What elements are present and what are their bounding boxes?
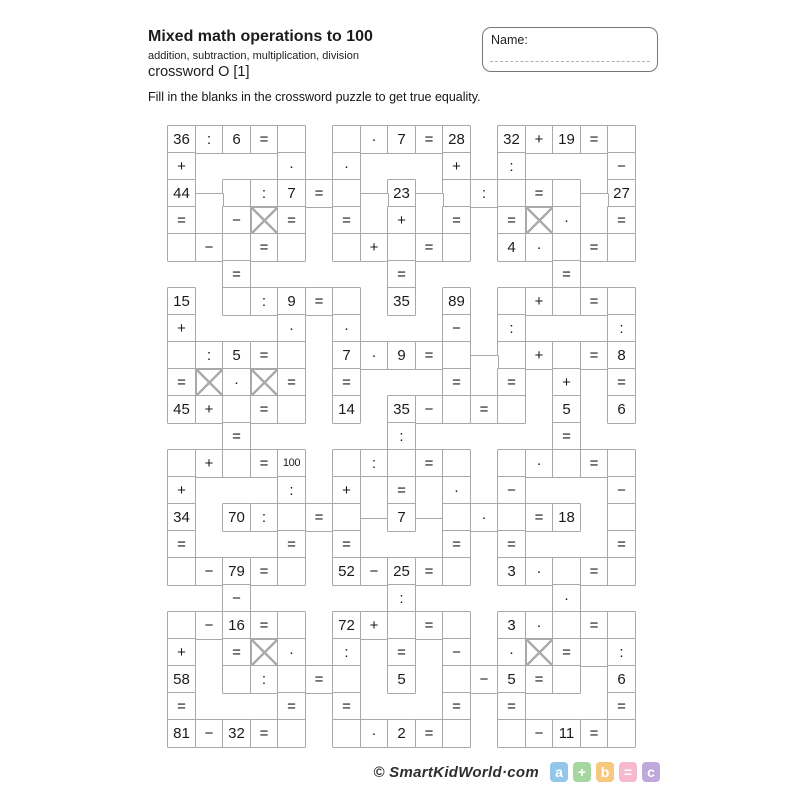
answer-cell[interactable] (552, 179, 581, 208)
operator-cell: = (250, 449, 279, 478)
answer-cell[interactable] (332, 665, 361, 694)
operator-cell: = (222, 422, 251, 451)
answer-cell[interactable] (442, 719, 471, 748)
operator-cell: · (360, 125, 389, 154)
given-number-cell: 28 (442, 125, 471, 154)
given-number-cell: 100 (277, 449, 306, 478)
footer-badges: a+b=c (550, 762, 660, 782)
answer-cell[interactable] (332, 719, 361, 748)
given-number-cell: 14 (332, 395, 361, 424)
answer-cell[interactable] (222, 233, 251, 262)
answer-cell[interactable] (167, 233, 196, 262)
operator-cell: = (222, 260, 251, 289)
operator-cell: = (580, 557, 609, 586)
operator-cell: = (552, 422, 581, 451)
operator-cell: = (277, 692, 306, 721)
answer-cell[interactable] (607, 719, 636, 748)
answer-cell[interactable] (442, 611, 471, 640)
answer-cell[interactable] (552, 665, 581, 694)
answer-cell[interactable] (552, 341, 581, 370)
operator-cell: + (442, 152, 471, 181)
operator-cell: = (167, 692, 196, 721)
answer-cell[interactable] (607, 557, 636, 586)
given-number-cell: 81 (167, 719, 196, 748)
operator-cell: = (250, 395, 279, 424)
instruction-text: Fill in the blanks in the crossword puzz… (148, 90, 481, 104)
given-number-cell: 32 (222, 719, 251, 748)
answer-cell[interactable] (552, 557, 581, 586)
answer-cell[interactable] (387, 611, 416, 640)
given-number-cell: 5 (552, 395, 581, 424)
operator-cell: + (195, 395, 224, 424)
answer-cell[interactable] (222, 395, 251, 424)
operator-cell: = (415, 719, 444, 748)
answer-cell[interactable] (167, 449, 196, 478)
answer-cell[interactable] (277, 719, 306, 748)
given-number-cell: 9 (387, 341, 416, 370)
operator-cell: = (442, 206, 471, 235)
name-label: Name: (491, 33, 528, 47)
operator-cell: = (167, 368, 196, 397)
operator-cell: = (497, 368, 526, 397)
operator-cell: : (470, 179, 499, 208)
operator-cell: = (387, 476, 416, 505)
operator-cell: = (332, 368, 361, 397)
answer-cell[interactable] (222, 665, 251, 694)
operator-cell: + (360, 611, 389, 640)
operator-cell: · (497, 638, 526, 667)
footer-badge: = (619, 762, 637, 782)
operator-cell: − (470, 665, 499, 694)
operator-cell: = (525, 179, 554, 208)
operator-cell: + (167, 476, 196, 505)
page-title: Mixed math operations to 100 (148, 28, 373, 46)
answer-cell[interactable] (580, 638, 609, 667)
page-subtitle: addition, subtraction, multiplication, d… (148, 50, 359, 62)
operator-cell: = (552, 260, 581, 289)
answer-cell[interactable] (580, 193, 609, 235)
operator-cell: = (250, 233, 279, 262)
answer-cell[interactable] (607, 611, 636, 640)
given-number-cell: 36 (167, 125, 196, 154)
answer-cell[interactable] (167, 341, 196, 370)
operator-cell: = (250, 341, 279, 370)
operator-cell: : (607, 314, 636, 343)
operator-cell: : (250, 179, 279, 208)
answer-cell[interactable] (607, 233, 636, 262)
operator-cell: = (442, 692, 471, 721)
blocked-cell (195, 368, 224, 397)
footer-badge: c (642, 762, 660, 782)
operator-cell: = (497, 692, 526, 721)
answer-cell[interactable] (277, 665, 306, 694)
operator-cell: + (195, 449, 224, 478)
answer-cell[interactable] (277, 611, 306, 640)
operator-cell: : (250, 287, 279, 316)
operator-cell: · (222, 368, 251, 397)
operator-cell: + (167, 152, 196, 181)
given-number-cell: 3 (497, 557, 526, 586)
operator-cell: + (525, 125, 554, 154)
given-number-cell: 5 (387, 665, 416, 694)
operator-cell: · (525, 557, 554, 586)
given-number-cell: 7 (277, 179, 306, 208)
given-number-cell: 16 (222, 611, 251, 640)
operator-cell: = (415, 449, 444, 478)
answer-cell[interactable] (387, 449, 416, 478)
answer-cell[interactable] (415, 193, 444, 235)
name-input-line[interactable] (490, 61, 650, 62)
given-number-cell: 6 (222, 125, 251, 154)
answer-cell[interactable] (607, 287, 636, 316)
footer: © SmartKidWorld·com a+b=c (0, 762, 660, 782)
operator-cell: · (360, 341, 389, 370)
answer-cell[interactable] (442, 395, 471, 424)
operator-cell: · (360, 719, 389, 748)
operator-cell: = (305, 179, 334, 208)
answer-cell[interactable] (360, 476, 389, 519)
operator-cell: = (442, 368, 471, 397)
operator-cell: : (195, 341, 224, 370)
operator-cell: : (332, 638, 361, 667)
crossword-label: crossword O [1] (148, 64, 250, 80)
operator-cell: = (387, 260, 416, 289)
operator-cell: − (195, 719, 224, 748)
answer-cell[interactable] (552, 287, 581, 316)
answer-cell[interactable] (607, 503, 636, 532)
given-number-cell: 27 (607, 179, 636, 208)
answer-cell[interactable] (497, 719, 526, 748)
operator-cell: = (222, 638, 251, 667)
given-number-cell: 58 (167, 665, 196, 694)
given-number-cell: 23 (387, 179, 416, 208)
operator-cell: · (552, 206, 581, 235)
operator-cell: + (332, 476, 361, 505)
operator-cell: = (415, 125, 444, 154)
operator-cell: : (250, 503, 279, 532)
given-number-cell: 4 (497, 233, 526, 262)
operator-cell: − (497, 476, 526, 505)
answer-cell[interactable] (442, 179, 471, 208)
operator-cell: · (525, 233, 554, 262)
operator-cell: · (277, 314, 306, 343)
operator-cell: + (525, 287, 554, 316)
answer-cell[interactable] (607, 449, 636, 478)
operator-cell: : (277, 476, 306, 505)
given-number-cell: 89 (442, 287, 471, 316)
operator-cell: = (552, 638, 581, 667)
given-number-cell: 8 (607, 341, 636, 370)
operator-cell: + (525, 341, 554, 370)
answer-cell[interactable] (552, 611, 581, 640)
answer-cell[interactable] (277, 395, 306, 424)
given-number-cell: 45 (167, 395, 196, 424)
given-number-cell: 7 (387, 503, 416, 532)
operator-cell: = (442, 530, 471, 559)
operator-cell: = (332, 692, 361, 721)
worksheet-page: Mixed math operations to 100 addition, s… (0, 0, 800, 800)
answer-cell[interactable] (277, 125, 306, 154)
operator-cell: − (607, 476, 636, 505)
answer-cell[interactable] (277, 233, 306, 262)
footer-badge: + (573, 762, 591, 782)
given-number-cell: 6 (607, 395, 636, 424)
given-number-cell: 52 (332, 557, 361, 586)
operator-cell: = (250, 719, 279, 748)
answer-cell[interactable] (497, 341, 526, 370)
answer-cell[interactable] (497, 503, 526, 532)
answer-cell[interactable] (222, 179, 251, 208)
given-number-cell: 79 (222, 557, 251, 586)
operator-cell: : (250, 665, 279, 694)
operator-cell: − (222, 584, 251, 613)
answer-cell[interactable] (222, 449, 251, 478)
operator-cell: − (195, 611, 224, 640)
answer-cell[interactable] (277, 503, 306, 532)
blocked-cell (525, 206, 554, 235)
operator-cell: − (195, 557, 224, 586)
operator-cell: = (580, 611, 609, 640)
operator-cell: = (607, 206, 636, 235)
operator-cell: : (387, 584, 416, 613)
operator-cell: + (167, 314, 196, 343)
blocked-cell (250, 638, 279, 667)
operator-cell: : (607, 638, 636, 667)
answer-cell[interactable] (442, 557, 471, 586)
operator-cell: : (497, 152, 526, 181)
operator-cell: · (525, 449, 554, 478)
blocked-cell (250, 206, 279, 235)
answer-cell[interactable] (442, 503, 471, 532)
operator-cell: + (167, 638, 196, 667)
given-number-cell: 7 (332, 341, 361, 370)
answer-cell[interactable] (497, 287, 526, 316)
given-number-cell: 6 (607, 665, 636, 694)
operator-cell: = (415, 233, 444, 262)
operator-cell: − (195, 233, 224, 262)
operator-cell: − (442, 314, 471, 343)
operator-cell: − (222, 206, 251, 235)
operator-cell: − (415, 395, 444, 424)
given-number-cell: 70 (222, 503, 251, 532)
answer-cell[interactable] (607, 125, 636, 154)
given-number-cell: 35 (387, 287, 416, 316)
answer-cell[interactable] (552, 233, 581, 262)
operator-cell: = (387, 638, 416, 667)
given-number-cell: 7 (387, 125, 416, 154)
operator-cell: = (415, 341, 444, 370)
answer-cell[interactable] (442, 449, 471, 478)
operator-cell: : (195, 125, 224, 154)
operator-cell: − (607, 152, 636, 181)
operator-cell: · (470, 503, 499, 532)
brand-text: © SmartKidWorld·com (373, 764, 539, 781)
operator-cell: = (580, 125, 609, 154)
operator-cell: = (607, 368, 636, 397)
answer-cell[interactable] (415, 476, 444, 519)
given-number-cell: 15 (167, 287, 196, 316)
operator-cell: · (442, 476, 471, 505)
given-number-cell: 5 (222, 341, 251, 370)
given-number-cell: 9 (277, 287, 306, 316)
operator-cell: + (387, 206, 416, 235)
answer-cell[interactable] (332, 503, 361, 532)
operator-cell: · (332, 314, 361, 343)
operator-cell: · (525, 611, 554, 640)
operator-cell: = (305, 503, 334, 532)
operator-cell: · (277, 152, 306, 181)
operator-cell: = (580, 287, 609, 316)
operator-cell: · (277, 638, 306, 667)
operator-cell: = (580, 233, 609, 262)
operator-cell: · (332, 152, 361, 181)
operator-cell: = (415, 611, 444, 640)
answer-cell[interactable] (442, 665, 471, 694)
operator-cell: : (387, 422, 416, 451)
operator-cell: : (360, 449, 389, 478)
answer-cell[interactable] (332, 287, 361, 316)
operator-cell: = (580, 341, 609, 370)
operator-cell: − (360, 557, 389, 586)
operator-cell: + (360, 233, 389, 262)
answer-cell[interactable] (195, 193, 224, 235)
operator-cell: = (250, 557, 279, 586)
answer-cell[interactable] (470, 355, 499, 397)
given-number-cell: 11 (552, 719, 581, 748)
answer-cell[interactable] (497, 449, 526, 478)
operator-cell: = (580, 719, 609, 748)
operator-cell: = (277, 530, 306, 559)
given-number-cell: 72 (332, 611, 361, 640)
given-number-cell: 2 (387, 719, 416, 748)
answer-cell[interactable] (497, 179, 526, 208)
answer-cell[interactable] (167, 611, 196, 640)
operator-cell: = (525, 503, 554, 532)
blocked-cell (525, 638, 554, 667)
operator-cell: = (250, 125, 279, 154)
operator-cell: = (305, 287, 334, 316)
operator-cell: = (277, 368, 306, 397)
operator-cell: : (497, 314, 526, 343)
answer-cell[interactable] (167, 557, 196, 586)
operator-cell: = (415, 557, 444, 586)
given-number-cell: 35 (387, 395, 416, 424)
answer-cell[interactable] (222, 287, 251, 316)
given-number-cell: 19 (552, 125, 581, 154)
operator-cell: = (332, 530, 361, 559)
operator-cell: − (525, 719, 554, 748)
answer-cell[interactable] (332, 125, 361, 154)
operator-cell: = (167, 206, 196, 235)
operator-cell: = (607, 692, 636, 721)
operator-cell: = (332, 206, 361, 235)
answer-cell[interactable] (277, 557, 306, 586)
answer-cell[interactable] (332, 233, 361, 262)
given-number-cell: 18 (552, 503, 581, 532)
operator-cell: = (497, 206, 526, 235)
answer-cell[interactable] (552, 449, 581, 478)
given-number-cell: 3 (497, 611, 526, 640)
operator-cell: = (497, 530, 526, 559)
operator-cell: − (442, 638, 471, 667)
answer-cell[interactable] (442, 341, 471, 370)
answer-cell[interactable] (277, 341, 306, 370)
operator-cell: + (552, 368, 581, 397)
crossword-grid: 36:6=·7=2832+19=+··+:−44:7=23:=27=−==+==… (167, 125, 635, 747)
answer-cell[interactable] (497, 395, 526, 424)
answer-cell[interactable] (360, 193, 389, 235)
name-box[interactable]: Name: (482, 27, 658, 72)
operator-cell: = (250, 611, 279, 640)
answer-cell[interactable] (332, 179, 361, 208)
given-number-cell: 44 (167, 179, 196, 208)
operator-cell: = (525, 665, 554, 694)
footer-badge: b (596, 762, 614, 782)
given-number-cell: 34 (167, 503, 196, 532)
answer-cell[interactable] (387, 233, 416, 262)
operator-cell: = (305, 665, 334, 694)
operator-cell: = (607, 530, 636, 559)
given-number-cell: 5 (497, 665, 526, 694)
answer-cell[interactable] (442, 233, 471, 262)
operator-cell: = (470, 395, 499, 424)
operator-cell: · (552, 584, 581, 613)
operator-cell: = (277, 206, 306, 235)
given-number-cell: 32 (497, 125, 526, 154)
answer-cell[interactable] (332, 449, 361, 478)
given-number-cell: 25 (387, 557, 416, 586)
operator-cell: = (167, 530, 196, 559)
operator-cell: = (580, 449, 609, 478)
blocked-cell (250, 368, 279, 397)
footer-badge: a (550, 762, 568, 782)
